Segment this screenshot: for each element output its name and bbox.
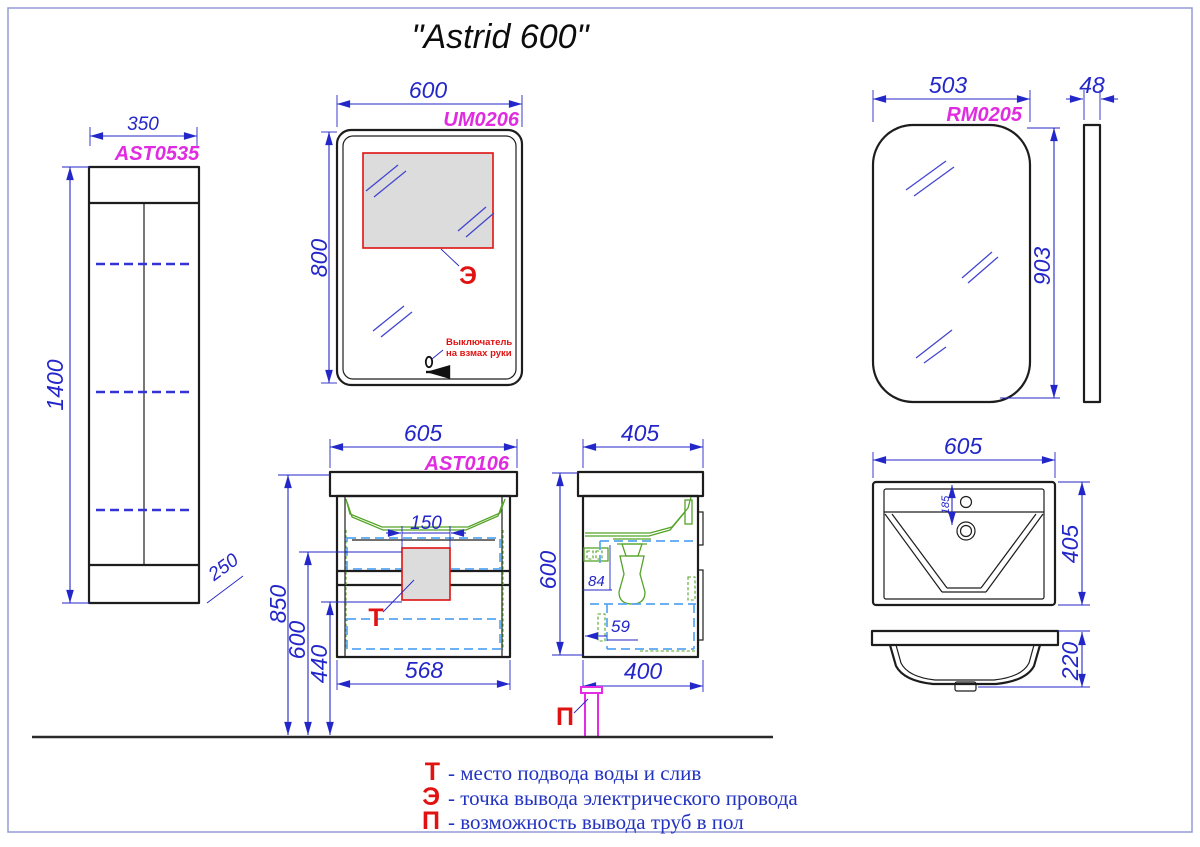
faucet-hole (961, 497, 972, 508)
sink-top-view: 605 185 405 (873, 433, 1090, 605)
vanity-height-total-dim: 850 (265, 585, 291, 624)
sink-profile-side (585, 497, 691, 533)
sink-width-dim: 605 (944, 433, 983, 459)
legend-letter-water: Т (425, 758, 440, 786)
switch-note-line2: на взмах руки (446, 348, 512, 359)
floor-pipe-label: П (556, 703, 574, 731)
drain-offset-dim: 185 (940, 495, 952, 514)
drawing-sheet: "Astrid 600" 350 AST0535 1400 250 600 UM… (0, 0, 1200, 847)
page-title: "Astrid 600" (411, 18, 590, 56)
led-panel (363, 153, 493, 248)
tall-cabinet-view: 350 AST0535 1400 250 (42, 114, 243, 603)
plain-mirror-code: RM0205 (946, 104, 1022, 126)
vanity-depth-dim: 405 (621, 420, 660, 446)
led-mirror-code: UM0206 (443, 109, 519, 131)
vanity-side-view: 405 600 84 59 (535, 420, 703, 737)
water-point-label: Т (368, 604, 383, 632)
sheet-border (8, 8, 1192, 832)
legend-text-water: - место подвода воды и слив (448, 761, 701, 785)
sink-front-view: 220 (872, 631, 1090, 691)
legend-text-electric: - точка вывода электрического провода (448, 786, 798, 810)
legend: Т - место подвода воды и слив Э - точка … (422, 758, 798, 835)
technical-drawing: "Astrid 600" 350 AST0535 1400 250 600 UM… (0, 0, 1200, 847)
switch-note-line1: Выключатель (446, 337, 512, 348)
tall-cabinet-width-dim: 350 (127, 114, 159, 135)
plain-mirror-side-view (1084, 125, 1100, 402)
plain-mirror-width-dim: 503 (929, 72, 968, 98)
sink-bowl-outline (890, 645, 1040, 684)
electric-point-label: Э (459, 262, 477, 290)
plain-mirror-outline (873, 125, 1030, 402)
cutout-width-dim: 150 (410, 513, 442, 534)
sink-outer-rim (873, 482, 1055, 605)
legend-letter-pipe: П (422, 807, 440, 835)
side-dim-84: 84 (588, 573, 605, 590)
tall-cabinet-height-dim: 1400 (42, 359, 68, 410)
plain-mirror-height-dim: 903 (1029, 247, 1055, 286)
plain-mirror-view: 503 RM0205 903 48 (873, 72, 1118, 402)
plumbing-cutout (402, 548, 450, 600)
tall-cabinet-code: AST0535 (114, 143, 200, 165)
led-mirror-height-dim: 800 (306, 239, 332, 278)
sink-flange (872, 631, 1058, 645)
vanity-countertop (330, 472, 517, 496)
sink-depth-dim: 405 (1057, 525, 1083, 564)
drain-hole (957, 522, 975, 540)
plain-mirror-depth-dim: 48 (1079, 72, 1105, 98)
vanity-body-width-dim: 568 (405, 657, 444, 683)
sink-height-dim: 220 (1057, 642, 1083, 682)
vanity-side-height-dim: 600 (535, 551, 561, 590)
countertop-side (578, 472, 703, 496)
vanity-width-dim: 605 (404, 420, 443, 446)
mixer-fitting (584, 548, 608, 561)
vanity-height-bottom-dim: 440 (306, 645, 332, 684)
sink-inner-rim (884, 489, 1044, 599)
vanity-bottom-depth-dim: 400 (624, 658, 663, 684)
legend-text-pipe: - возможность вывода труб в пол (448, 810, 744, 834)
led-mirror-width-dim: 600 (409, 77, 448, 103)
side-dim-59: 59 (611, 617, 630, 636)
siphon-trap (613, 539, 651, 604)
motion-sensor-icon (426, 357, 432, 367)
led-mirror-view: 600 UM0206 800 Э Выключатель на взмах ру… (306, 77, 522, 385)
vanity-front-view: 605 AST0106 150 Т 568 850 600 (265, 420, 517, 735)
